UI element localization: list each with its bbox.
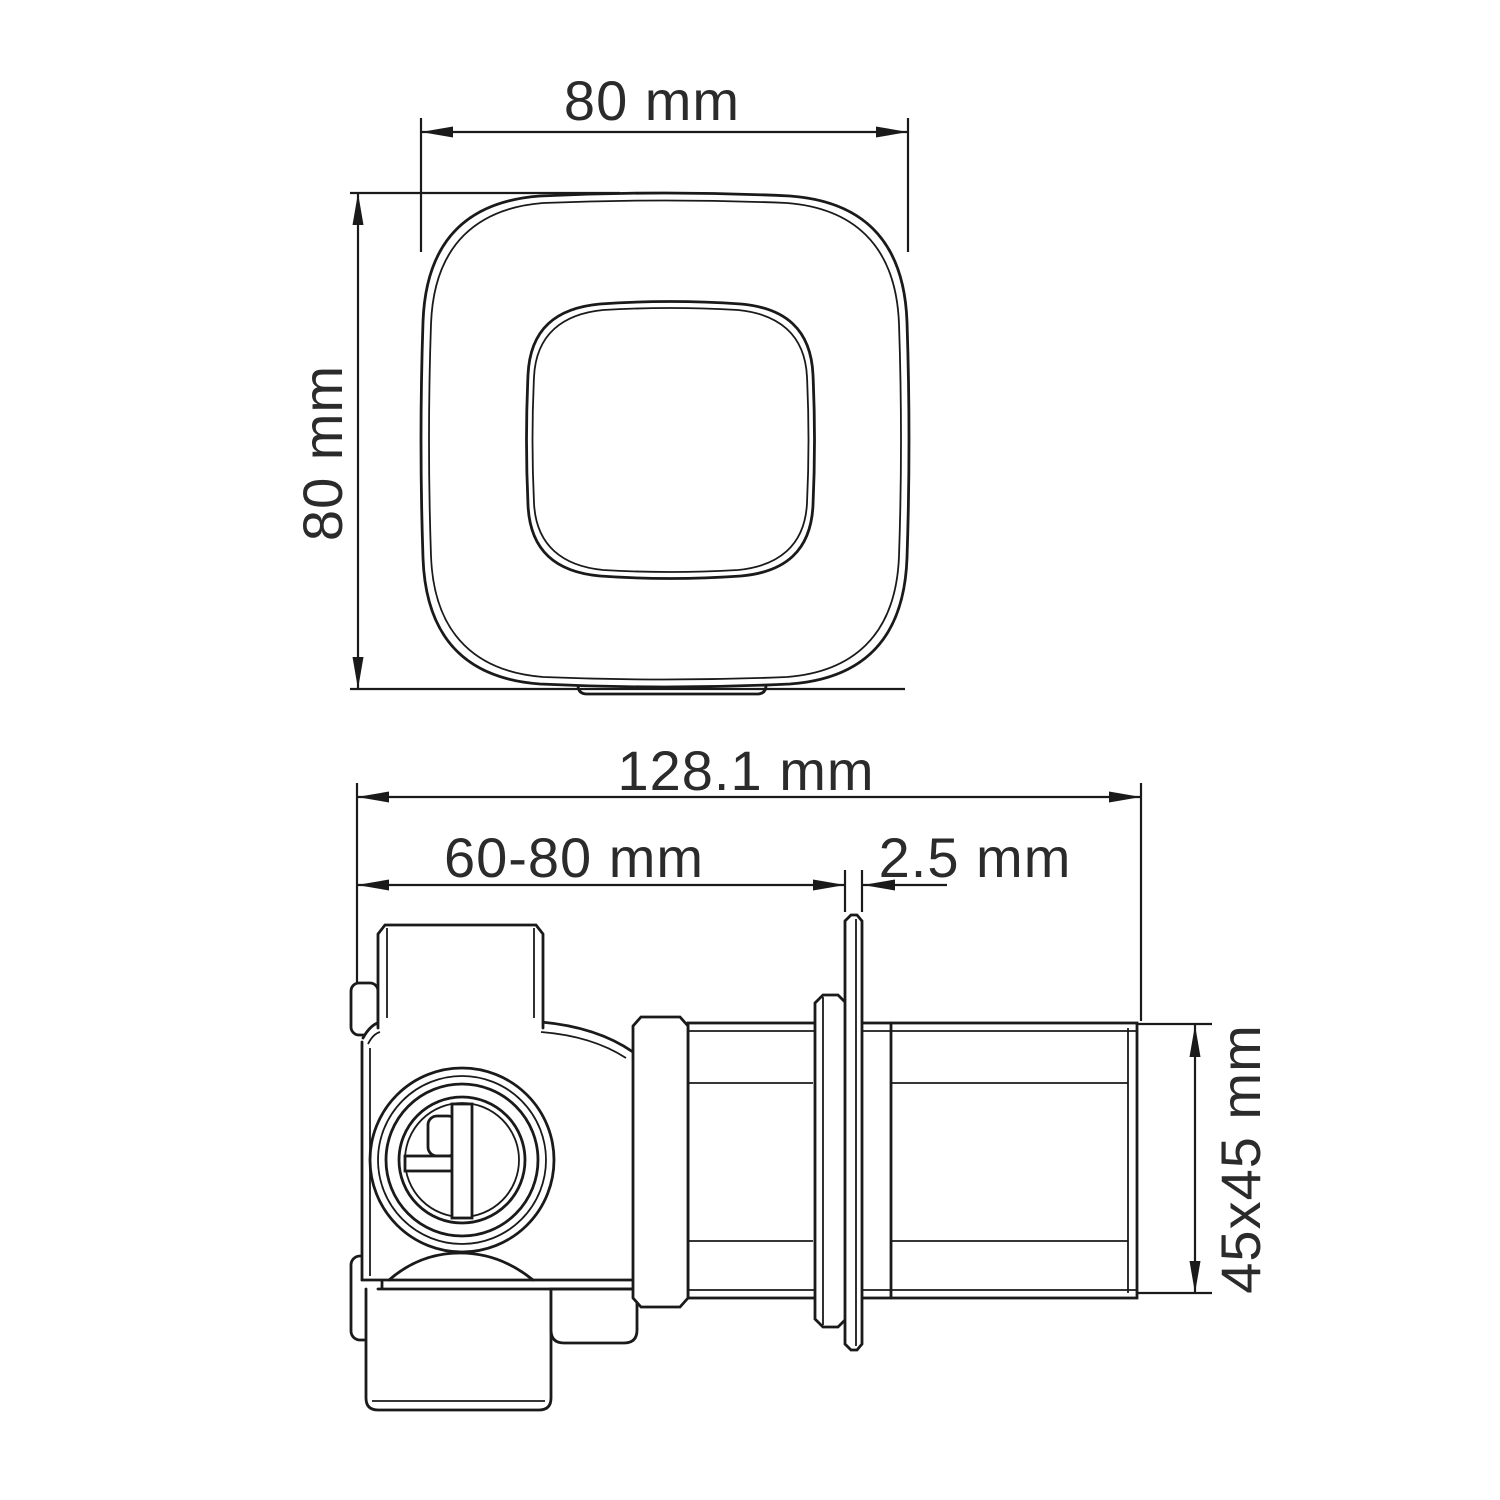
lower-step-band — [551, 1289, 637, 1343]
wall-collar — [815, 995, 846, 1327]
top-view: 80 mm 80 mm — [291, 69, 909, 694]
spigot-cylinder — [688, 1023, 1137, 1298]
arrow-right-icon — [1109, 792, 1141, 803]
arrow-left-icon — [357, 880, 389, 891]
arrow-right-icon — [876, 127, 908, 138]
wall-collar-outline — [815, 995, 846, 1327]
arrow-up-icon — [1190, 1025, 1201, 1057]
dim-label-top-width: 80 mm — [564, 69, 740, 132]
dim-label-plate-thickness: 2.5 mm — [879, 826, 1072, 889]
dim-label-square-section: 45x45 mm — [1209, 1024, 1272, 1293]
top-view-handle-knob — [527, 302, 815, 579]
arrow-down-icon — [1190, 1261, 1201, 1293]
technical-drawing-page: 80 mm 80 mm — [0, 0, 1500, 1500]
outlet-stub-fill — [366, 1289, 551, 1410]
arrow-down-icon — [353, 657, 364, 689]
outlet-stub — [366, 1289, 551, 1410]
valve-port-circles — [370, 1068, 554, 1252]
arrow-up-icon — [353, 193, 364, 225]
body-collar — [633, 1017, 688, 1307]
spigot-outline — [688, 1023, 1137, 1298]
mounting-tab-top — [351, 983, 378, 1035]
dim-square-section: 45x45 mm — [1137, 1024, 1272, 1294]
wall-plate — [845, 915, 862, 1350]
arrow-left-icon — [357, 792, 389, 803]
cartridge-vertical-bar — [452, 1104, 472, 1218]
arrow-right-icon — [813, 880, 845, 891]
inlet-stub-fill — [378, 925, 543, 1030]
inlet-stub — [378, 925, 543, 1030]
cartridge-horizontal-bar — [405, 1156, 452, 1171]
wall-plate-outline — [845, 915, 862, 1350]
technical-drawing-canvas: 80 mm 80 mm — [0, 0, 1500, 1500]
dim-plate-thickness: 2.5 mm — [863, 826, 1071, 891]
arrow-left-icon — [421, 127, 453, 138]
dim-label-mounting-depth: 60-80 mm — [444, 826, 704, 889]
dim-label-overall-length: 128.1 mm — [618, 739, 875, 802]
side-view: 128.1 mm 60-80 mm 2.5 mm 45x45 mm — [351, 739, 1272, 1410]
dim-label-top-height: 80 mm — [291, 365, 354, 541]
dim-mounting-depth: 60-80 mm — [357, 826, 862, 912]
